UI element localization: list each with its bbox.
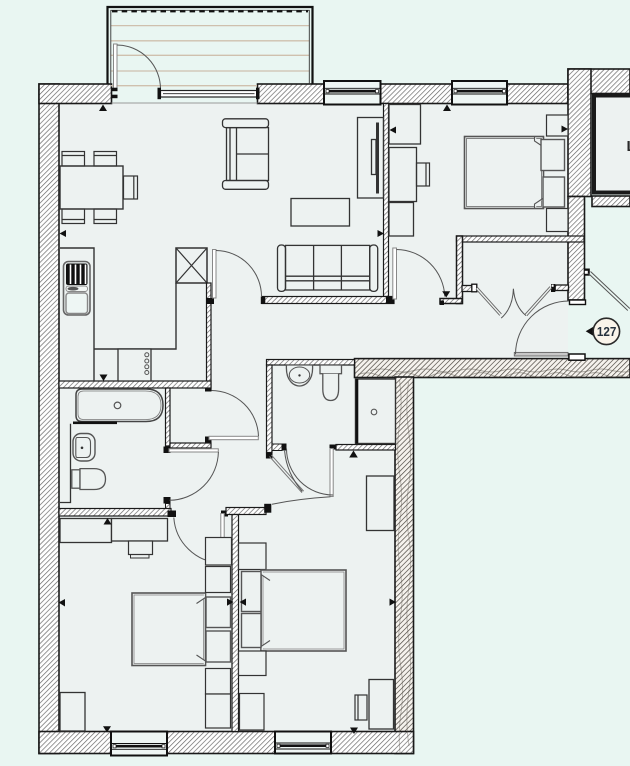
svg-text:L: L: [627, 138, 630, 155]
svg-text:127: 127: [597, 324, 617, 339]
